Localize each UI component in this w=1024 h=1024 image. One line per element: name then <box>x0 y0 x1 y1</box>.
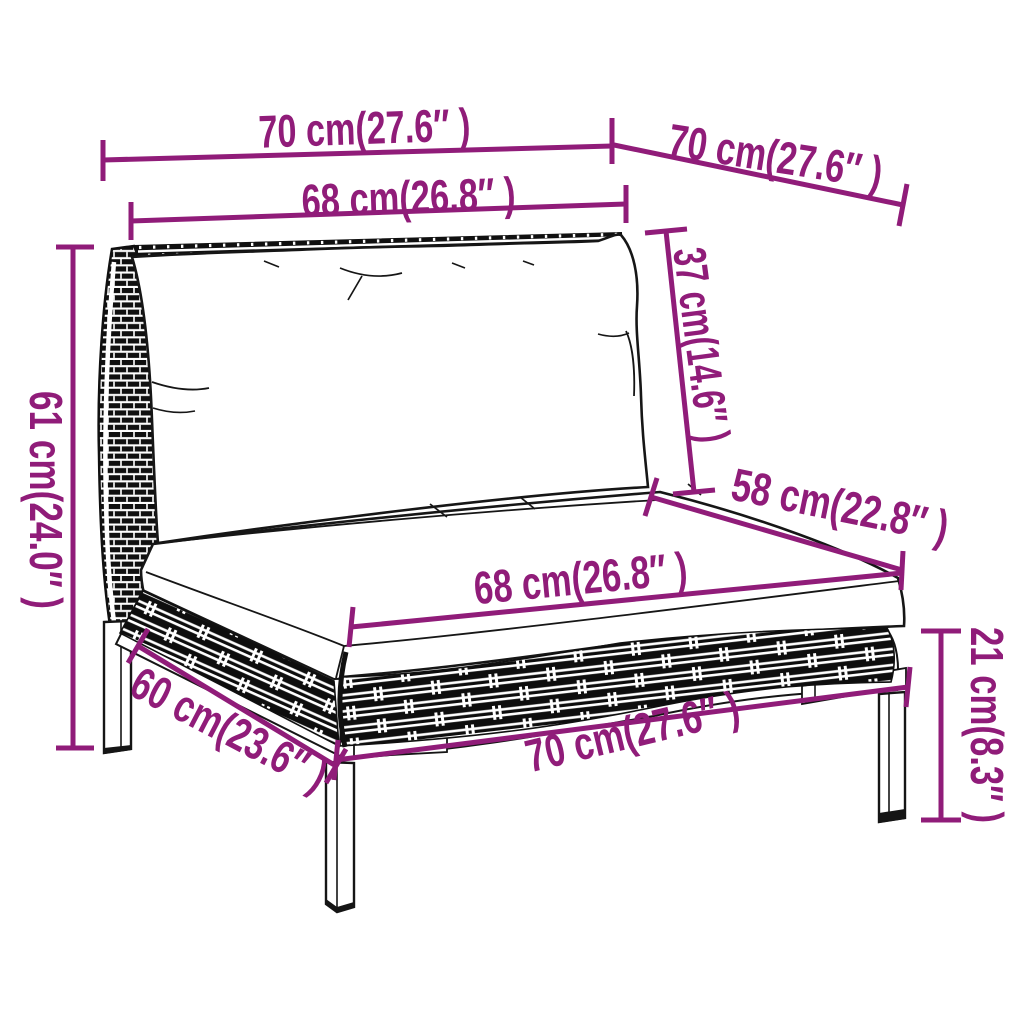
svg-text:21 cm(8.3″ ): 21 cm(8.3″ ) <box>961 627 1013 823</box>
svg-text:61 cm(24.0″ ): 61 cm(24.0″ ) <box>20 391 72 609</box>
svg-text:70 cm(27.6″ ): 70 cm(27.6″ ) <box>258 98 472 157</box>
svg-text:68 cm(26.8″ ): 68 cm(26.8″ ) <box>301 167 517 226</box>
